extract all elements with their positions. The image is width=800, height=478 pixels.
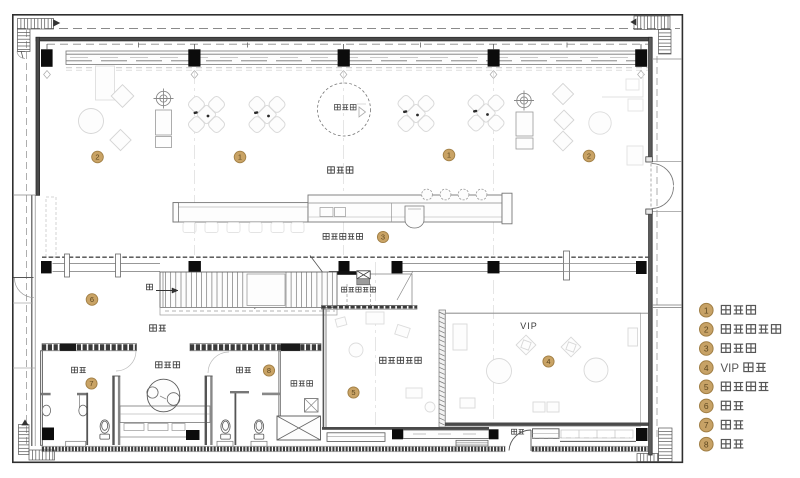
svg-text:2: 2 — [704, 324, 709, 334]
svg-text:4: 4 — [546, 357, 550, 366]
svg-text:5: 5 — [704, 382, 709, 392]
svg-text:4: 4 — [704, 363, 709, 373]
svg-text:8: 8 — [704, 439, 709, 449]
svg-text:2: 2 — [95, 153, 99, 162]
svg-text:1: 1 — [238, 153, 242, 162]
svg-text:7: 7 — [704, 420, 709, 430]
svg-text:6: 6 — [90, 295, 94, 304]
svg-text:1: 1 — [447, 151, 451, 160]
svg-text:1: 1 — [704, 305, 709, 315]
svg-text:7: 7 — [89, 379, 93, 388]
svg-text:3: 3 — [381, 233, 385, 242]
svg-text:8: 8 — [267, 366, 271, 375]
svg-text:2: 2 — [587, 152, 591, 161]
svg-text:6: 6 — [704, 401, 709, 411]
svg-text:5: 5 — [351, 388, 355, 397]
svg-text:VIP: VIP — [520, 321, 538, 331]
svg-text:3: 3 — [704, 344, 709, 354]
svg-text:VIP: VIP — [721, 363, 740, 375]
